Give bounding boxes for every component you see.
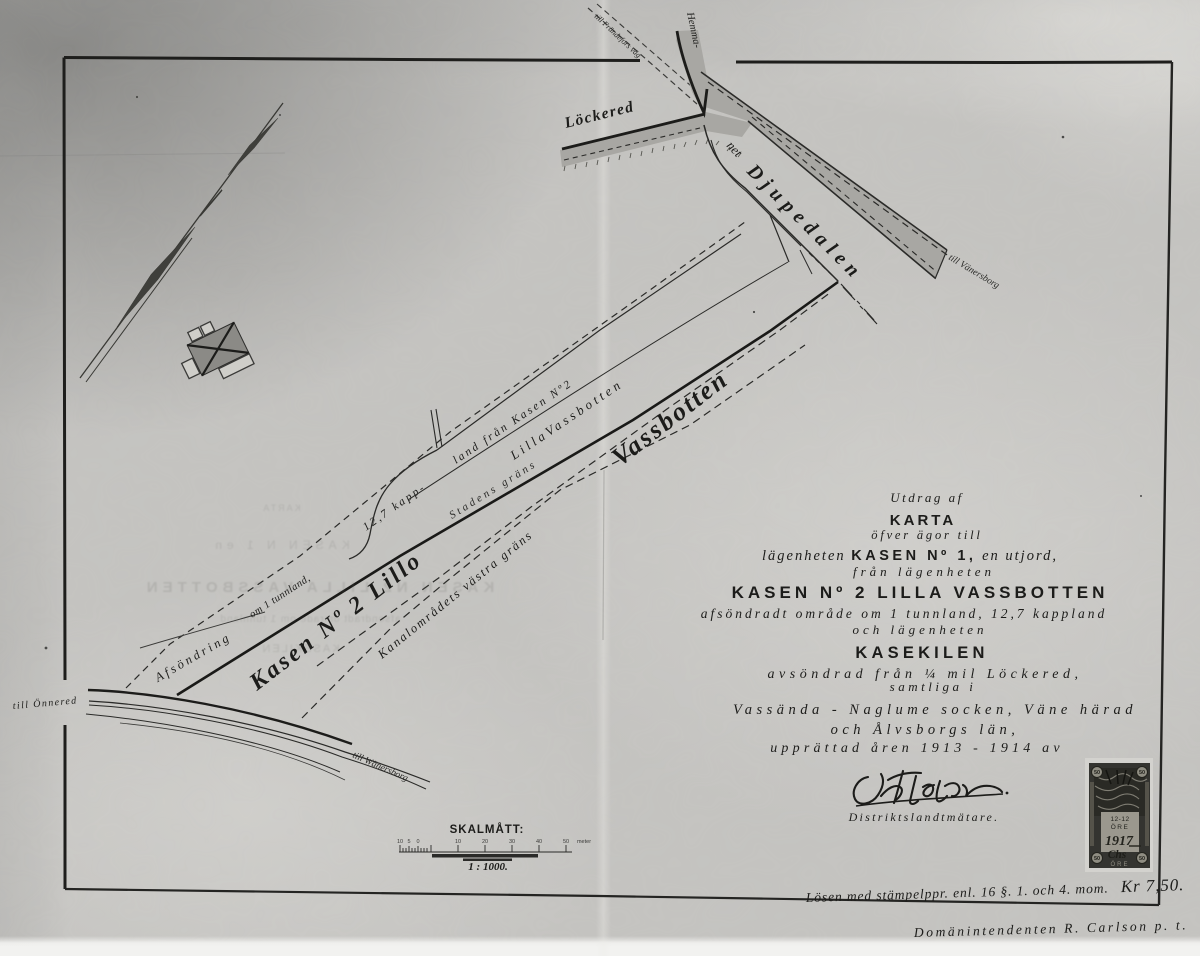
svg-text:Utdrag af: Utdrag af [890, 490, 963, 505]
svg-text:ÖRE: ÖRE [1110, 861, 1129, 868]
svg-text:Vassända - Naglume socken, Vän: Vassända - Naglume socken, Väne härad [733, 702, 1137, 718]
svg-text:1917: 1917 [1105, 834, 1134, 849]
svg-text:KARTA: KARTA [890, 512, 956, 529]
svg-text:Chs: Chs [1108, 849, 1127, 861]
svg-text:öfver ägor till: öfver ägor till [871, 528, 982, 542]
svg-text:lägenheten KASEN Nº 1, en ut: lägenheten KASEN Nº 1, en utjord, [762, 548, 1058, 564]
svg-text:50: 50 [563, 839, 569, 845]
svg-text:Distriktslandtmätare.: Distriktslandtmätare. [848, 810, 1000, 824]
svg-text:50: 50 [1094, 770, 1100, 776]
svg-text:40: 40 [536, 839, 542, 845]
svg-text:KASEKILEN: KASEKILEN [260, 643, 339, 655]
svg-text:afsondradt omrade om 1 tunnlan: afsondradt omrade om 1 tunnland [219, 614, 400, 625]
svg-text:0: 0 [416, 839, 419, 845]
svg-text:20: 20 [482, 839, 488, 845]
svg-text:12-12: 12-12 [1110, 816, 1129, 823]
svg-text:och Ålvsborgs län,: och Ålvsborgs län, [831, 722, 1020, 738]
svg-text:och lägenheten: och lägenheten [852, 622, 987, 637]
svg-text:10: 10 [397, 839, 403, 845]
svg-text:5: 5 [407, 839, 410, 845]
svg-text:KASEN Nº 2 LILLA VASSBOTTEN: KASEN Nº 2 LILLA VASSBOTTEN [732, 583, 1109, 602]
svg-text:samtliga i: samtliga i [890, 679, 977, 694]
svg-text:KARTA: KARTA [261, 503, 300, 513]
svg-text:10: 10 [455, 839, 461, 845]
svg-text:50: 50 [1139, 856, 1145, 862]
svg-text:1 : 1000.: 1 : 1000. [468, 861, 507, 873]
svg-text:SKALMÅTT:: SKALMÅTT: [450, 823, 525, 836]
svg-text:upprättad åren 1913 - 1914 av: upprättad åren 1913 - 1914 av [770, 741, 1064, 756]
svg-text:50: 50 [1139, 770, 1145, 776]
svg-text:30: 30 [509, 839, 515, 845]
svg-text:ÖRE: ÖRE [1111, 823, 1130, 831]
svg-text:KASEKILEN: KASEKILEN [855, 644, 988, 662]
svg-text:från lägenheten: från lägenheten [853, 564, 995, 579]
svg-text:meter: meter [577, 839, 591, 845]
svg-text:afsöndradt område om 1 tunnlan: afsöndradt område om 1 tunnland, 12,7 ka… [701, 606, 1108, 621]
svg-text:KASEN N 1 en: KASEN N 1 en [210, 538, 349, 552]
svg-text:KASEN N2 LILLA VASSBOTTEN: KASEN N2 LILLA VASSBOTTEN [142, 579, 495, 596]
svg-text:50: 50 [1094, 856, 1100, 862]
